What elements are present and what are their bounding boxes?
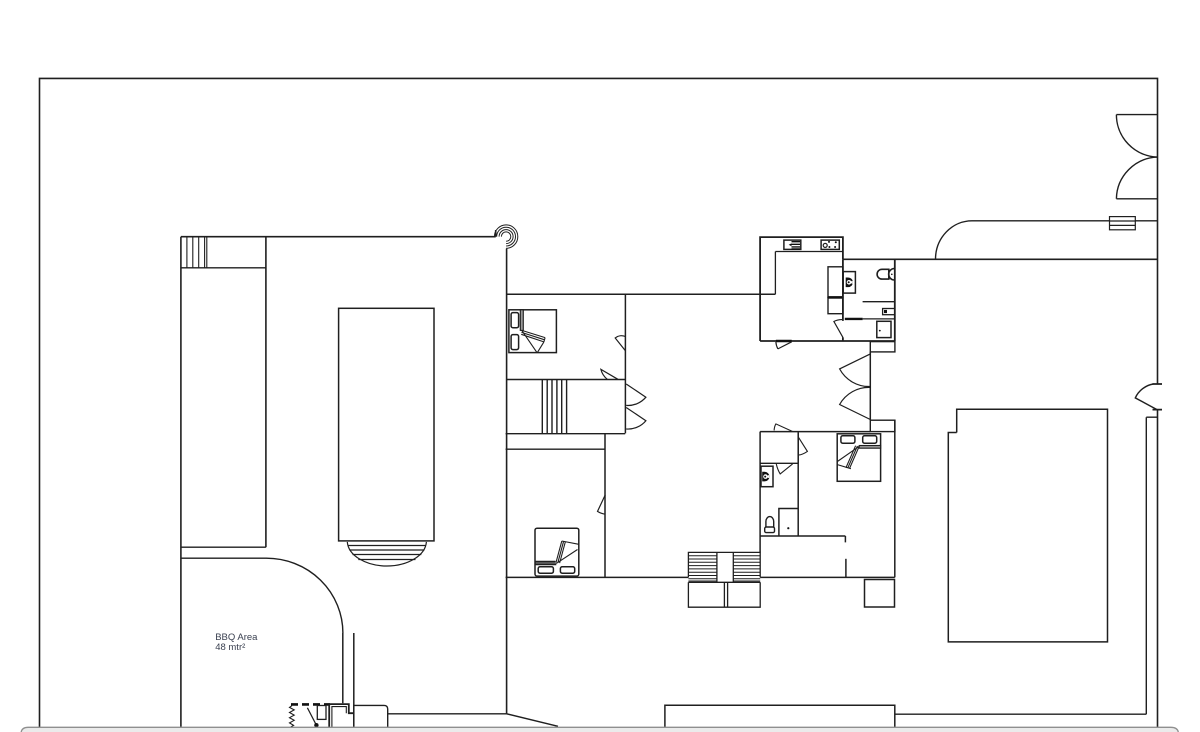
svg-text:48 mtr²: 48 mtr² bbox=[215, 642, 245, 653]
